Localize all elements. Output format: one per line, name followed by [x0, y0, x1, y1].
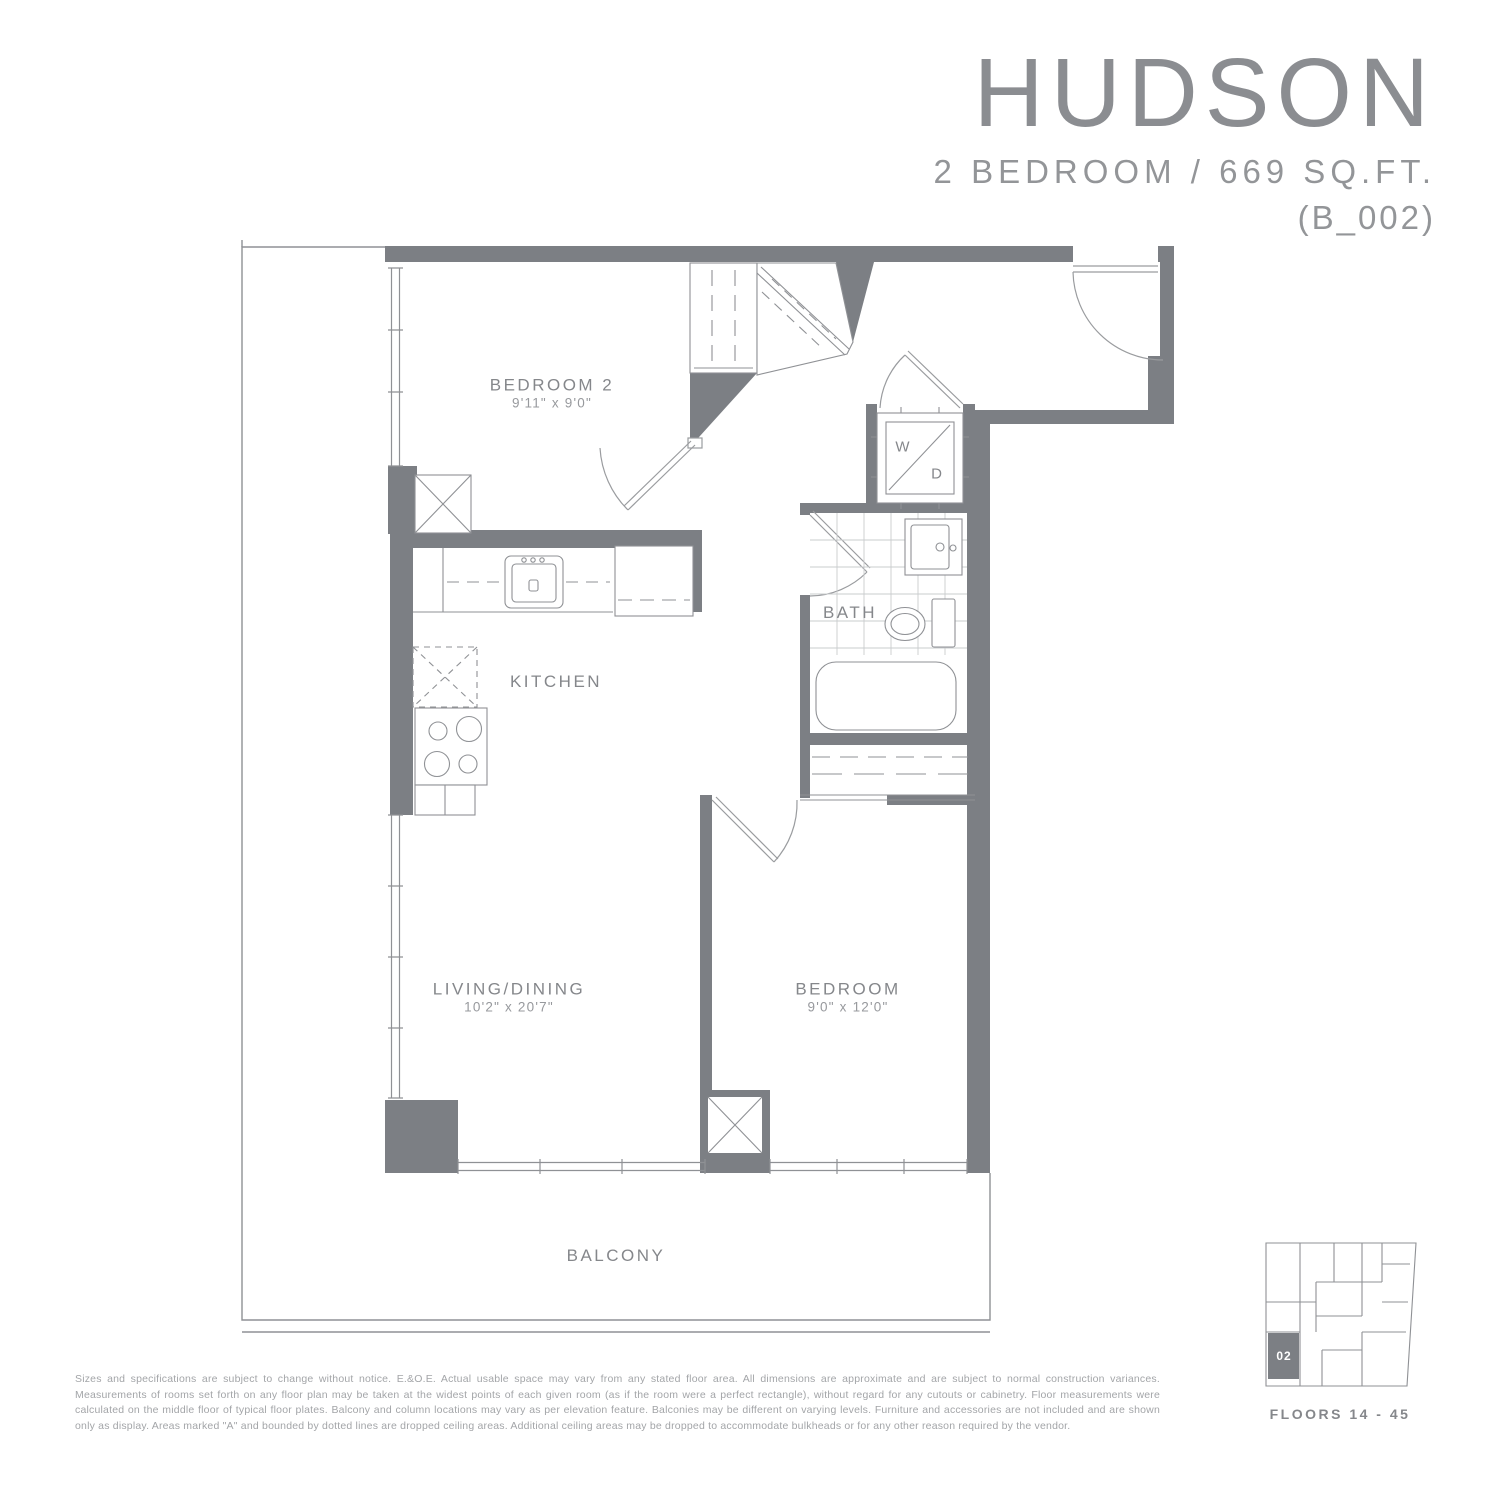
bedroom-closet [800, 757, 975, 800]
keyplan-floors-label: FLOORS 14 - 45 [1270, 1406, 1411, 1422]
balcony-name: BALCONY [567, 1246, 666, 1266]
room-label-living: LIVING/DINING 10'2" x 20'7" [433, 980, 585, 1015]
room-label-bath: BATH [823, 603, 877, 623]
disclaimer-text: Sizes and specifications are subject to … [75, 1372, 1160, 1434]
keyplan [1266, 1243, 1416, 1386]
bath-name: BATH [823, 603, 877, 623]
bath-door [810, 511, 870, 596]
bedroom-name: BEDROOM [795, 980, 900, 1000]
living-dims: 10'2" x 20'7" [433, 1000, 585, 1015]
kitchen-sink [505, 556, 563, 608]
balcony-outline [242, 240, 990, 1332]
counter-below-stove [415, 785, 475, 815]
column-bedroom [708, 1097, 762, 1153]
washer-dryer [871, 407, 969, 509]
washer-label: W [895, 439, 910, 456]
floor-plan-drawing [0, 0, 1500, 1500]
floorplan-sheet: HUDSON 2 BEDROOM / 669 SQ.FT. (B_002) [0, 0, 1500, 1500]
dryer-label: D [931, 466, 943, 483]
keyplan-unit-badge: 02 [1276, 1349, 1291, 1363]
column-bedroom2 [415, 475, 471, 533]
column-kitchen [413, 647, 477, 707]
bedroom2-door [600, 438, 702, 510]
room-label-kitchen: KITCHEN [510, 672, 602, 692]
kitchen-name: KITCHEN [510, 672, 602, 692]
toilet [885, 599, 955, 647]
entry-closet-vertical [690, 263, 757, 373]
stove [415, 708, 487, 785]
room-label-balcony: BALCONY [567, 1246, 666, 1266]
living-name: LIVING/DINING [433, 980, 585, 1000]
bathtub [816, 662, 956, 730]
fridge [615, 546, 693, 616]
laundry-door [880, 351, 963, 408]
bedroom2-name: BEDROOM 2 [490, 376, 615, 396]
room-label-bedroom: BEDROOM 9'0" x 12'0" [795, 980, 900, 1015]
bedroom-dims: 9'0" x 12'0" [795, 1000, 900, 1015]
entry-door [1073, 266, 1163, 360]
bath-vanity-sink [905, 519, 962, 575]
entry-closet-diagonal [757, 263, 853, 375]
bedroom-door [712, 797, 797, 862]
room-label-bedroom2: BEDROOM 2 9'11" x 9'0" [490, 376, 615, 411]
bedroom2-dims: 9'11" x 9'0" [490, 396, 615, 411]
